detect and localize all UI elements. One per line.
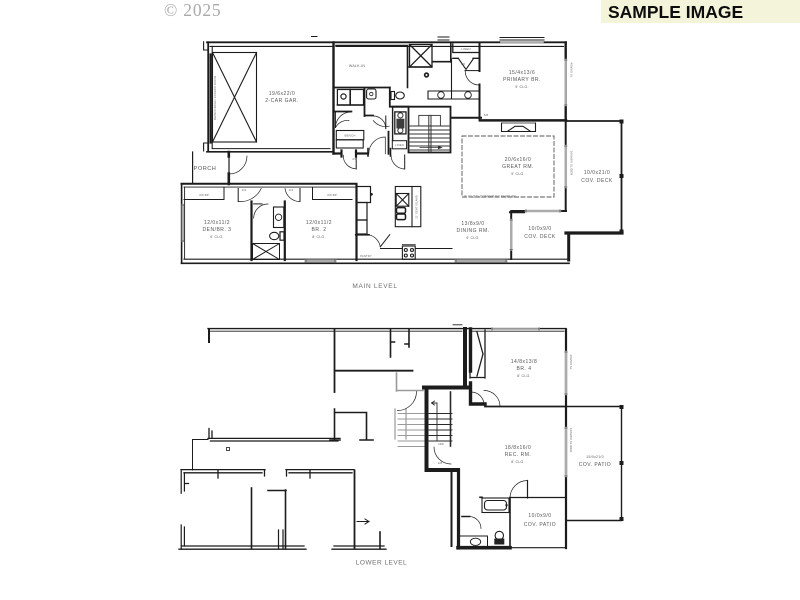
svg-text:PRIMARY BR.: PRIMARY BR. bbox=[503, 77, 541, 83]
svg-text:DINING RM.: DINING RM. bbox=[456, 228, 489, 234]
svg-text:9' CLG.: 9' CLG. bbox=[466, 236, 479, 240]
svg-text:8' CLG.: 8' CLG. bbox=[312, 235, 325, 239]
svg-text:2-CAR GAR.: 2-CAR GAR. bbox=[265, 98, 299, 104]
svg-text:REC. RM.: REC. RM. bbox=[505, 452, 532, 458]
svg-text:GREAT RM.: GREAT RM. bbox=[502, 164, 534, 170]
svg-text:3/0x5/0 SL: 3/0x5/0 SL bbox=[569, 354, 573, 370]
svg-text:DEN/BR. 3: DEN/BR. 3 bbox=[203, 227, 232, 233]
svg-text:12/0x11/2: 12/0x11/2 bbox=[204, 220, 230, 226]
svg-text:5/8: 5/8 bbox=[484, 113, 489, 117]
svg-text:PANTRY: PANTRY bbox=[360, 254, 372, 258]
svg-text:PORCH: PORCH bbox=[194, 166, 217, 172]
svg-text:BR. 4: BR. 4 bbox=[516, 366, 531, 372]
svg-text:14/8x13/8: 14/8x13/8 bbox=[511, 359, 537, 365]
svg-text:18/8x16/0: 18/8x16/0 bbox=[505, 445, 531, 451]
svg-text:20/6x16/0: 20/6x16/0 bbox=[505, 157, 531, 163]
svg-text:LINEN: LINEN bbox=[461, 47, 470, 51]
svg-text:12/0x8/0 SLIDER: 12/0x8/0 SLIDER bbox=[569, 428, 573, 453]
svg-text:16R: 16R bbox=[438, 442, 445, 446]
svg-text:2/8: 2/8 bbox=[352, 157, 357, 161]
svg-text:9' CLG.: 9' CLG. bbox=[210, 235, 223, 239]
svg-text:8' CLG.: 8' CLG. bbox=[511, 460, 524, 464]
svg-text:BENCH: BENCH bbox=[344, 134, 355, 138]
svg-text:WALK-IN: WALK-IN bbox=[349, 64, 365, 68]
svg-text:19/6x22/0: 19/6x22/0 bbox=[269, 91, 295, 97]
svg-text:9' CLG.: 9' CLG. bbox=[515, 85, 528, 89]
svg-text:15/0x21/0: 15/0x21/0 bbox=[586, 455, 604, 459]
svg-text:MAIN LEVEL: MAIN LEVEL bbox=[352, 283, 397, 290]
svg-text:COV. PATIO: COV. PATIO bbox=[524, 522, 556, 528]
svg-text:8' CLG.: 8' CLG. bbox=[517, 374, 530, 378]
svg-text:COV. PATIO: COV. PATIO bbox=[579, 462, 611, 468]
svg-text:4/0x5/0 SL: 4/0x5/0 SL bbox=[570, 62, 574, 78]
svg-text:5/0: 5/0 bbox=[461, 62, 466, 66]
svg-text:10/0x9/0: 10/0x9/0 bbox=[528, 226, 551, 232]
svg-text:2/4: 2/4 bbox=[289, 188, 294, 192]
svg-text:9' CLG'D COFFER W/ SHIPLAP: 9' CLG'D COFFER W/ SHIPLAP bbox=[464, 195, 516, 199]
svg-text:BR. 2: BR. 2 bbox=[311, 227, 326, 233]
svg-text:10/0x9/0: 10/0x9/0 bbox=[528, 513, 551, 519]
svg-text:15/4x13/6: 15/4x13/6 bbox=[509, 70, 535, 76]
svg-text:6/0 BP: 6/0 BP bbox=[327, 193, 337, 197]
svg-text:9' CLG.: 9' CLG. bbox=[511, 172, 524, 176]
svg-text:10/0x21/0: 10/0x21/0 bbox=[584, 170, 610, 176]
svg-text:16/0x8/0 SLIDER: 16/0x8/0 SLIDER bbox=[570, 151, 574, 176]
svg-text:2/4: 2/4 bbox=[242, 188, 247, 192]
svg-text:LINEN: LINEN bbox=[395, 143, 404, 147]
svg-text:13/8x9/0: 13/8x9/0 bbox=[461, 221, 484, 227]
svg-text:12' SEAT ISLAND: 12' SEAT ISLAND bbox=[415, 195, 419, 219]
svg-text:COV. DECK: COV. DECK bbox=[524, 234, 556, 240]
svg-text:LOWER LEVEL: LOWER LEVEL bbox=[356, 560, 407, 567]
svg-text:12/0x11/2: 12/0x11/2 bbox=[306, 220, 332, 226]
svg-text:COV. DECK: COV. DECK bbox=[581, 178, 613, 184]
svg-text:6/0 BP: 6/0 BP bbox=[199, 193, 209, 197]
svg-text:REINFORCED 16/0x8/0 DOOR: REINFORCED 16/0x8/0 DOOR bbox=[213, 75, 217, 120]
